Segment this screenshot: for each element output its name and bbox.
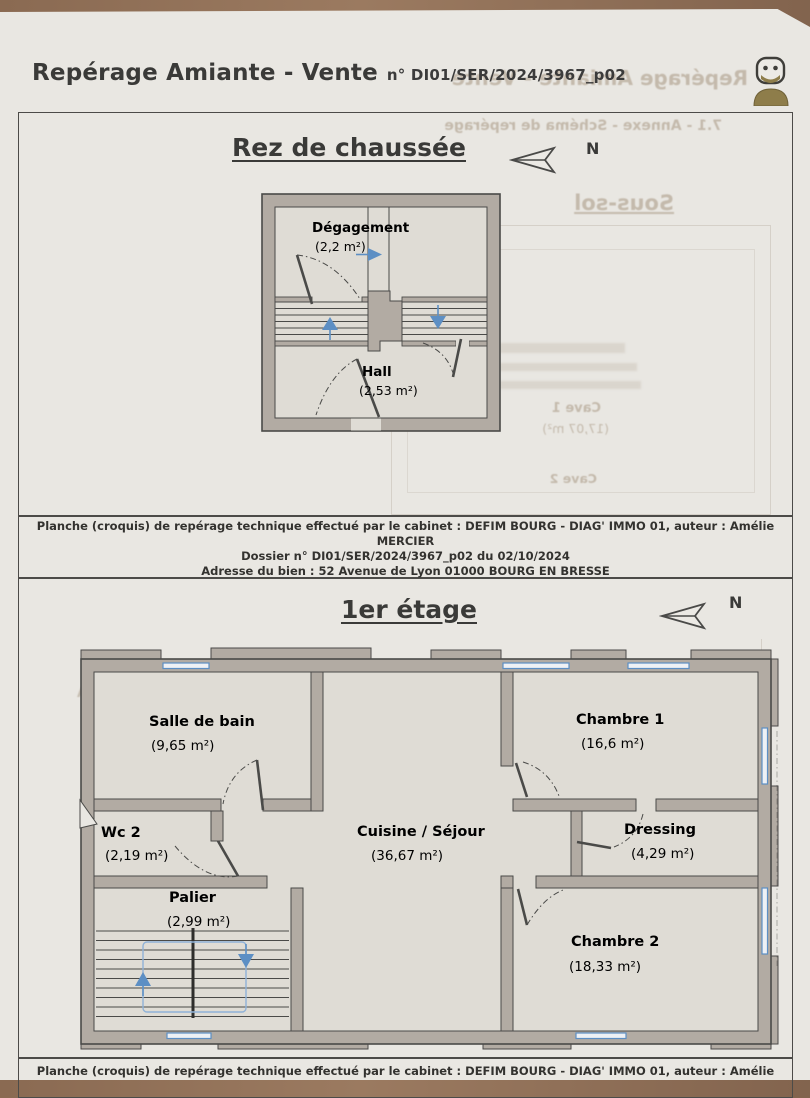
room-area-hall: (2,53 m²) [359, 383, 418, 398]
scanned-document-photo: { "header": { "title": "Repérage Amiante… [0, 0, 810, 1080]
caption-line-1: Planche (croquis) de repérage technique … [19, 519, 792, 534]
bleedthrough-bar [487, 363, 637, 371]
document-header: Repérage Amiante - Vente n° DI01/SER/202… [32, 60, 626, 86]
north-label: N [729, 593, 742, 612]
ground-floor-plan: Dégagement (2,2 m²) Hall (2,53 m²) [256, 189, 506, 437]
section-ground-floor: 7.1 - Annexe - Schéma de repérage Rez de… [18, 112, 793, 516]
ground-floor-title: Rez de chaussée [189, 133, 509, 162]
room-label-ch1: Chambre 1 [576, 712, 664, 728]
room-area-degagement: (2,2 m²) [315, 239, 366, 254]
room-area-ch2: (18,33 m²) [569, 959, 641, 975]
north-label: N [586, 139, 599, 158]
bleedthrough-cave2: Cave 2 [527, 471, 597, 486]
room-label-degagement: Dégagement [312, 220, 410, 236]
bleedthrough-sous-sol: Sous-sol [539, 191, 674, 215]
document-number: n° DI01/SER/2024/3967_p02 [387, 66, 626, 84]
gf-wall [402, 297, 487, 302]
bleedthrough-bar [497, 343, 625, 353]
logo-body [754, 89, 788, 106]
caption-line-4: Adresse du bien : 52 Avenue de Lyon 0100… [19, 564, 792, 579]
room-label-ch2: Chambre 2 [571, 934, 659, 950]
logo-eye-left [763, 66, 768, 71]
gf-door-opening-right [456, 340, 469, 347]
footer-caption-block: Planche (croquis) de repérage technique … [18, 1058, 793, 1098]
first-floor-title: 1er étage [249, 595, 569, 624]
north-arrow-icon [509, 145, 561, 175]
plan-caption-block: Planche (croquis) de repérage technique … [18, 516, 793, 578]
room-label-hall: Hall [362, 364, 392, 380]
room-label-wc2: Wc 2 [101, 825, 141, 841]
gf-wall [362, 297, 368, 302]
room-label-cuisine: Cuisine / Séjour [357, 824, 486, 840]
bleedthrough-annex-71: 7.1 - Annexe - Schéma de repérage [387, 118, 722, 134]
bleedthrough-cave1: Cave 1 [531, 401, 601, 416]
gf-wall [402, 341, 456, 346]
caption-line-3: Dossier n° DI01/SER/2024/3967_p02 du 02/… [19, 549, 792, 564]
room-area-sdb: (9,65 m²) [151, 738, 214, 754]
room-label-sdb: Salle de bain [149, 714, 255, 730]
room-area-wc2: (2,19 m²) [105, 848, 168, 864]
room-area-dressing: (4,29 m²) [631, 846, 694, 862]
gf-wall [275, 297, 312, 302]
north-arrow-icon [659, 601, 711, 631]
room-label-dressing: Dressing [624, 822, 696, 838]
defim-person-logo [750, 56, 792, 106]
section-first-floor: 1er étage N Aucune photo d'illustration … [18, 578, 793, 1058]
room-label-palier: Palier [169, 890, 217, 906]
gf-wall [275, 341, 368, 346]
gf-entry-opening [351, 419, 381, 431]
logo-head [757, 58, 784, 83]
room-area-ch1: (16,6 m²) [581, 736, 644, 752]
caption-line-2: MERCIER [19, 534, 792, 549]
logo-eye-right [773, 66, 778, 71]
footer-line-1: Planche (croquis) de repérage technique … [19, 1064, 792, 1079]
bleedthrough-cave1-area: (17,07 m²) [524, 421, 609, 436]
first-floor-plan: Salle de bain (9,65 m²) Chambre 1 (16,6 … [71, 636, 781, 1056]
room-area-palier: (2,99 m²) [167, 914, 230, 930]
room-area-cuisine: (36,67 m²) [371, 848, 443, 864]
gf-wall [469, 341, 487, 346]
document-title: Repérage Amiante - Vente [32, 60, 378, 86]
